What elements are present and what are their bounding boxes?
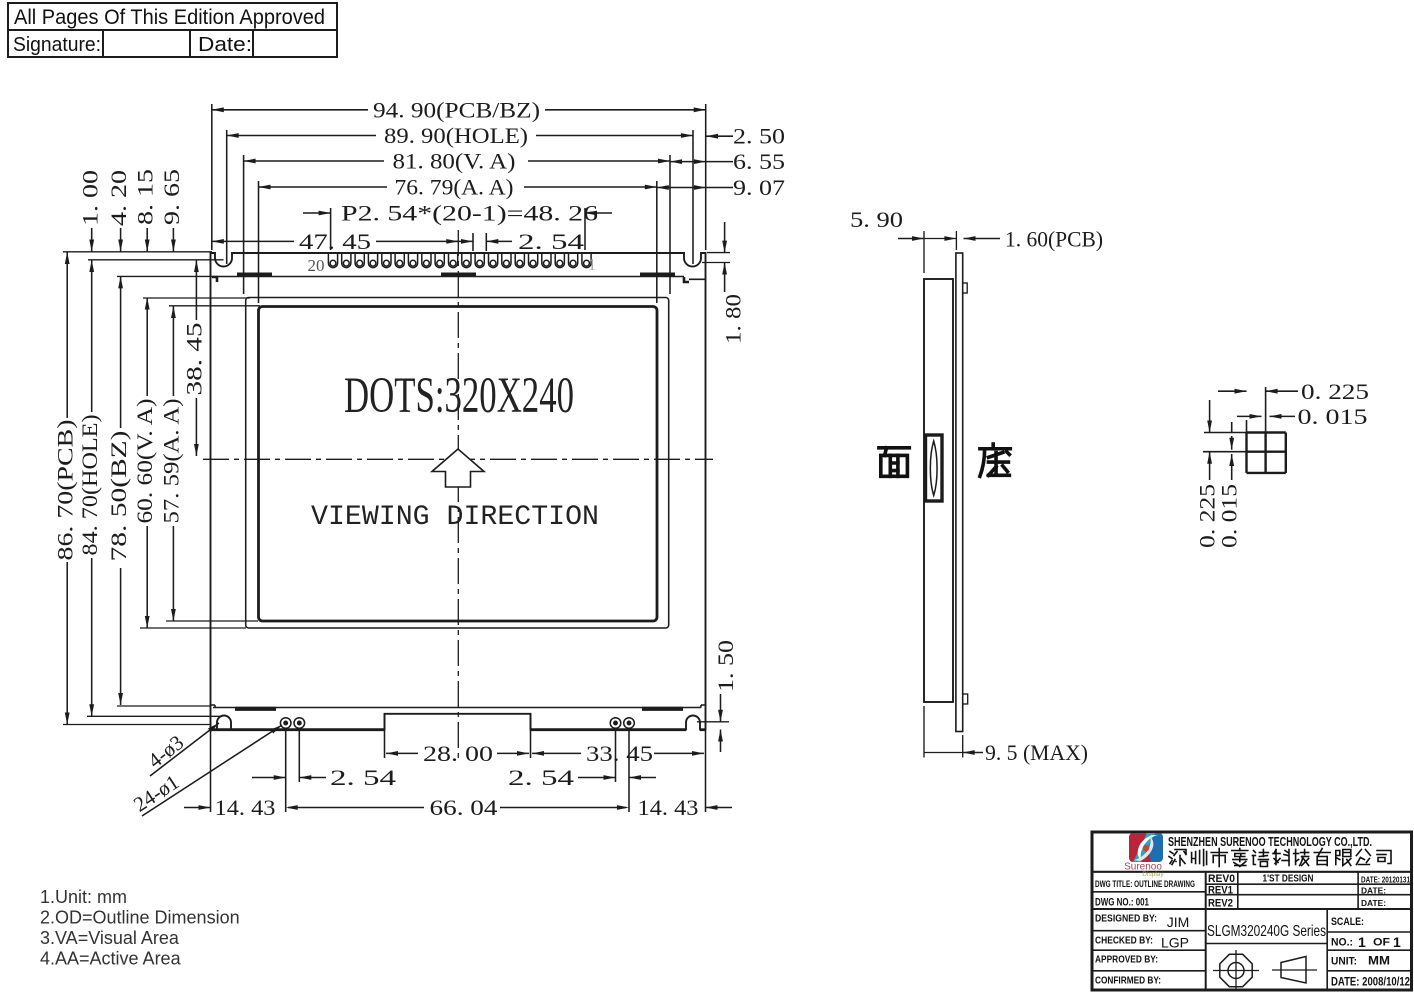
svg-text:DWG TITLE: OUTLINE DRAWING: DWG TITLE: OUTLINE DRAWING (1095, 879, 1195, 890)
svg-text:33. 45: 33. 45 (586, 741, 653, 766)
svg-text:1. 00: 1. 00 (78, 170, 103, 226)
svg-text:2. 50: 2. 50 (733, 124, 785, 149)
svg-text:1: 1 (588, 255, 597, 274)
svg-text:LGP: LGP (1161, 935, 1189, 951)
svg-text:14. 43: 14. 43 (215, 795, 276, 820)
svg-text:1. 50: 1. 50 (713, 640, 738, 692)
svg-text:2.OD=Outline Dimension: 2.OD=Outline Dimension (40, 908, 240, 928)
svg-text:60. 60(V. A): 60. 60(V. A) (132, 399, 157, 524)
svg-text:Display: Display (1142, 871, 1164, 878)
svg-text:2. 54: 2. 54 (330, 765, 396, 790)
svg-text:89. 90(HOLE): 89. 90(HOLE) (384, 123, 528, 148)
svg-text:78. 50(BZ): 78. 50(BZ) (106, 431, 131, 562)
svg-text:VIEWING DIRECTION: VIEWING DIRECTION (311, 502, 599, 533)
svg-text:47. 45: 47. 45 (299, 229, 371, 254)
svg-text:Signature:: Signature: (13, 34, 101, 56)
svg-text:0. 225: 0. 225 (1301, 379, 1369, 404)
svg-text:SHENZHEN SURENOO TECHNOLOGY CO: SHENZHEN SURENOO TECHNOLOGY CO.,LTD. (1168, 834, 1372, 849)
svg-text:86. 70(PCB): 86. 70(PCB) (53, 420, 78, 561)
svg-text:2. 54: 2. 54 (518, 229, 584, 254)
svg-text:66. 04: 66. 04 (430, 795, 498, 820)
svg-text:8. 15: 8. 15 (133, 169, 158, 225)
svg-text:UNIT:: UNIT: (1331, 956, 1357, 968)
svg-text:57. 59(A. A): 57. 59(A. A) (158, 399, 183, 524)
svg-text:6. 55: 6. 55 (733, 149, 785, 174)
svg-text:1'ST DESIGN: 1'ST DESIGN (1263, 873, 1314, 885)
svg-text:Date:: Date: (198, 34, 252, 56)
svg-text:1. 60(PCB): 1. 60(PCB) (1005, 227, 1103, 252)
svg-text:CHECKED BY:: CHECKED BY: (1095, 935, 1153, 947)
svg-text:OF: OF (1373, 937, 1390, 949)
svg-text:DESIGNED BY:: DESIGNED BY: (1095, 913, 1157, 925)
svg-text:DATE:: DATE: (1361, 886, 1386, 896)
svg-text:84. 70(HOLE): 84. 70(HOLE) (77, 415, 102, 556)
svg-text:NO.:: NO.: (1331, 937, 1353, 949)
svg-text:REV2: REV2 (1208, 898, 1233, 910)
svg-text:81. 80(V. A): 81. 80(V. A) (393, 149, 516, 174)
svg-text:SCALE:: SCALE: (1331, 916, 1364, 928)
svg-text:2. 54: 2. 54 (508, 765, 574, 790)
svg-text:APPROVED BY:: APPROVED BY: (1095, 954, 1158, 966)
svg-text:0. 015: 0. 015 (1217, 484, 1242, 548)
svg-text:SLGM320240G Series: SLGM320240G Series (1207, 923, 1326, 940)
svg-text:1: 1 (1358, 934, 1366, 950)
svg-text:DATE:: DATE: (1361, 898, 1386, 908)
svg-text:1. 80: 1. 80 (721, 294, 746, 344)
svg-text:CONFIRMED BY:: CONFIRMED BY: (1095, 975, 1161, 987)
svg-text:1.Unit: mm: 1.Unit: mm (40, 887, 127, 907)
svg-text:76. 79(A. A): 76. 79(A. A) (395, 175, 514, 200)
svg-text:P2. 54*(20-1)=48. 26: P2. 54*(20-1)=48. 26 (341, 201, 598, 226)
svg-text:9. 07: 9. 07 (733, 175, 785, 200)
svg-text:4.AA=Active Area: 4.AA=Active Area (40, 949, 182, 969)
svg-text:28. 00: 28. 00 (423, 741, 493, 766)
svg-text:9. 5 (MAX): 9. 5 (MAX) (985, 740, 1088, 765)
svg-text:5. 90: 5. 90 (850, 207, 903, 232)
svg-text:4. 20: 4. 20 (106, 170, 131, 226)
svg-text:3.VA=Visual Area: 3.VA=Visual Area (40, 928, 180, 948)
svg-text:REV0: REV0 (1208, 873, 1235, 885)
svg-text:DATE: 2008/10/12: DATE: 2008/10/12 (1331, 977, 1410, 989)
svg-text:38. 45: 38. 45 (182, 323, 207, 396)
svg-text:1: 1 (1393, 934, 1401, 950)
svg-text:MM: MM (1368, 956, 1390, 968)
svg-text:20: 20 (308, 256, 325, 275)
svg-text:DWG NO.: 001: DWG NO.: 001 (1095, 897, 1149, 909)
svg-text:REV1: REV1 (1208, 885, 1233, 897)
svg-text:DOTS:320X240: DOTS:320X240 (344, 368, 574, 424)
svg-text:0. 015: 0. 015 (1298, 404, 1368, 429)
svg-text:14. 43: 14. 43 (638, 795, 699, 820)
svg-text:All Pages Of This Edition Appr: All Pages Of This Edition Approved (14, 6, 325, 29)
svg-text:94. 90(PCB/BZ): 94. 90(PCB/BZ) (373, 98, 540, 123)
svg-text:JIM: JIM (1167, 914, 1190, 930)
svg-text:9. 65: 9. 65 (159, 169, 184, 225)
svg-text:DATE: 20120131: DATE: 20120131 (1361, 875, 1410, 885)
